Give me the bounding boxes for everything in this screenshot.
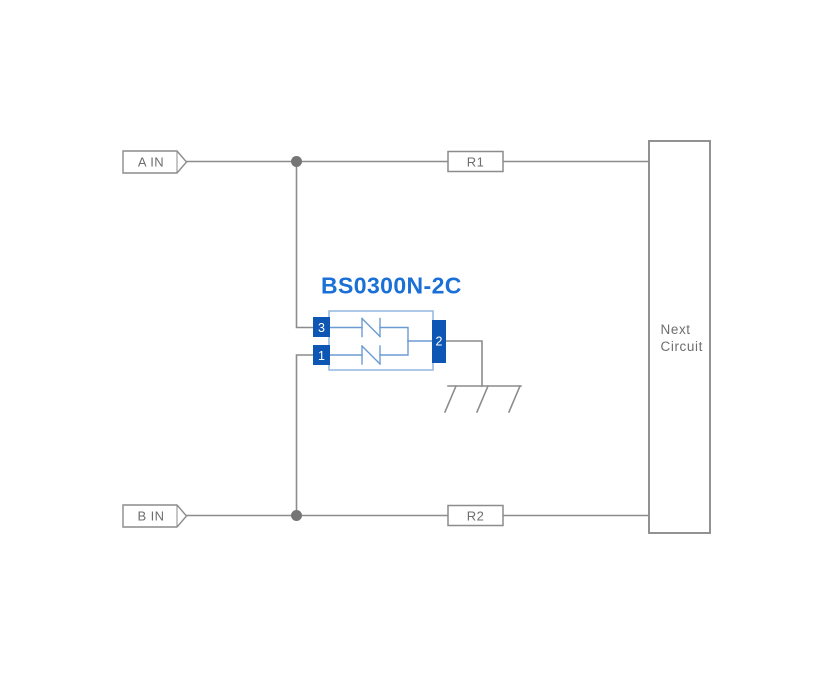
pin-1-number: 1 xyxy=(318,349,325,363)
next-circuit-label-line2: Circuit xyxy=(661,339,703,354)
port-a-label: A IN xyxy=(138,155,164,170)
ground-slash-left xyxy=(445,386,456,412)
pin-2: 2 xyxy=(432,320,446,363)
resistor-r1: R1 xyxy=(448,152,503,172)
tvs-component: BS0300N-2C 3 1 2 xyxy=(313,273,462,371)
junction-dot-a xyxy=(291,156,302,167)
wire-b-to-pin1 xyxy=(297,355,314,516)
wire-pin2-to-ground xyxy=(446,341,482,386)
wire-a-to-pin3 xyxy=(297,162,314,328)
pin-1: 1 xyxy=(313,345,330,365)
resistor-r2: R2 xyxy=(448,506,503,526)
circuit-diagram: A IN B IN R1 R2 Next Circuit BS0300N-2C xyxy=(0,0,832,675)
next-circuit-block: Next Circuit xyxy=(649,141,710,533)
pin-3-number: 3 xyxy=(318,321,325,335)
next-circuit-body xyxy=(649,141,710,533)
resistor-r2-label: R2 xyxy=(467,509,484,524)
resistor-r1-label: R1 xyxy=(467,155,484,170)
next-circuit-label-line1: Next xyxy=(661,322,691,337)
port-b-label: B IN xyxy=(138,509,165,524)
pin-3: 3 xyxy=(313,317,330,337)
junction-dot-b xyxy=(291,510,302,521)
ground-slash-middle xyxy=(477,386,488,412)
ground-slash-right xyxy=(509,386,520,412)
port-a-in: A IN xyxy=(123,151,187,173)
pin-2-number: 2 xyxy=(436,335,443,349)
ground-symbol xyxy=(445,386,521,412)
port-b-in: B IN xyxy=(123,505,187,527)
component-title: BS0300N-2C xyxy=(321,273,462,299)
